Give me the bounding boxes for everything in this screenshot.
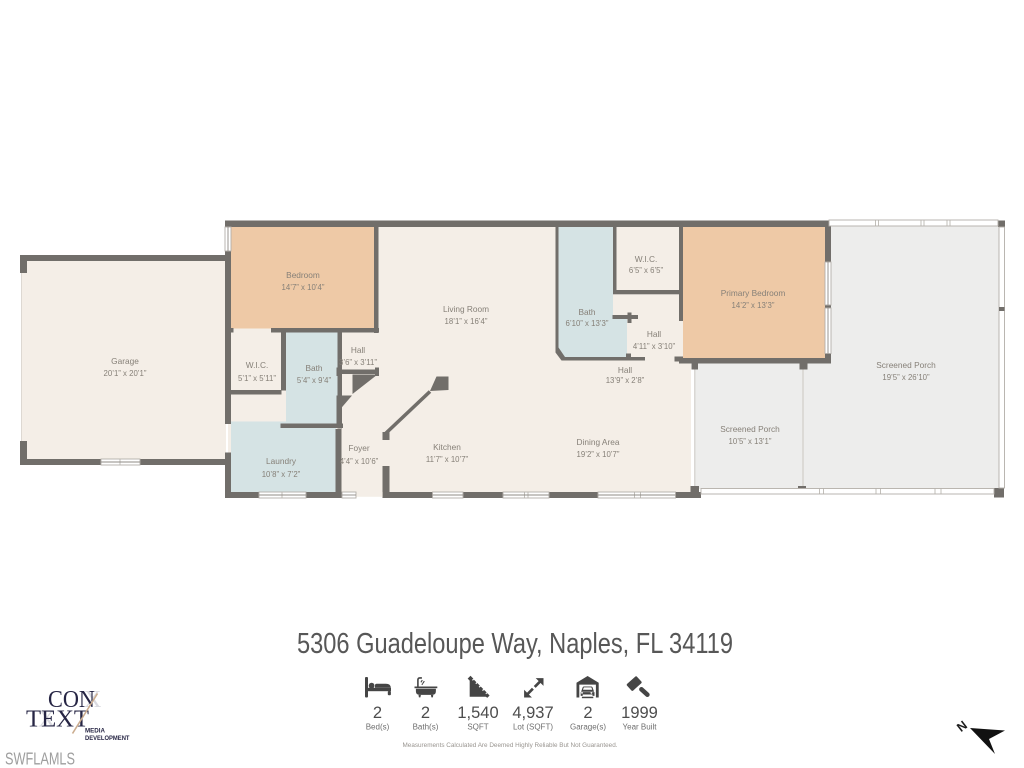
svg-text:Year Built: Year Built — [623, 723, 658, 732]
svg-text:Bedroom: Bedroom — [286, 270, 320, 280]
svg-text:13’9” x 2’8”: 13’9” x 2’8” — [606, 376, 645, 385]
svg-text:6’5” x 6’5”: 6’5” x 6’5” — [629, 266, 664, 275]
svg-text:3’6” x 3’11”: 3’6” x 3’11” — [339, 358, 377, 367]
svg-text:Bath(s): Bath(s) — [413, 723, 439, 732]
svg-text:Screened Porch: Screened Porch — [876, 360, 936, 370]
svg-text:Screened Porch: Screened Porch — [720, 424, 780, 434]
svg-text:5306 Guadeloupe Way, Naples, F: 5306 Guadeloupe Way, Naples, FL 34119 — [297, 628, 733, 660]
svg-text:Bed(s): Bed(s) — [366, 723, 390, 732]
svg-text:14’2” x 13’3”: 14’2” x 13’3” — [732, 301, 775, 310]
svg-text:5’4” x 9’4”: 5’4” x 9’4” — [297, 376, 332, 385]
svg-text:18’1” x 16’4”: 18’1” x 16’4” — [445, 317, 488, 326]
svg-text:MEDIA: MEDIA — [85, 728, 105, 735]
svg-text:Bath: Bath — [578, 307, 595, 317]
svg-text:2: 2 — [421, 704, 430, 722]
svg-text:Foyer: Foyer — [348, 443, 369, 453]
svg-text:19’5” x 26’10”: 19’5” x 26’10” — [882, 373, 930, 382]
svg-text:14’7” x 10’4”: 14’7” x 10’4” — [282, 283, 325, 292]
svg-text:4,937: 4,937 — [512, 704, 553, 722]
svg-text:10’5” x 13’1”: 10’5” x 13’1” — [729, 437, 772, 446]
svg-text:20’1” x 20’1”: 20’1” x 20’1” — [104, 369, 147, 378]
svg-text:Kitchen: Kitchen — [433, 442, 461, 452]
svg-text:1,540: 1,540 — [457, 704, 498, 722]
svg-text:Dining Area: Dining Area — [577, 437, 620, 447]
svg-text:SQFT: SQFT — [467, 723, 488, 732]
svg-text:1999: 1999 — [621, 704, 658, 722]
svg-text:5’1” x 5’11”: 5’1” x 5’11” — [238, 374, 276, 383]
svg-text:Garage(s): Garage(s) — [570, 723, 606, 732]
svg-text:DEVELOPMENT: DEVELOPMENT — [85, 735, 130, 742]
svg-text:4’11” x 3’10”: 4’11” x 3’10” — [633, 342, 676, 351]
svg-text:Primary Bedroom: Primary Bedroom — [721, 288, 786, 298]
svg-text:2: 2 — [373, 704, 382, 722]
svg-text:W.I.C.: W.I.C. — [635, 254, 658, 264]
svg-text:10’8” x 7’2”: 10’8” x 7’2” — [262, 470, 301, 479]
svg-text:2: 2 — [583, 704, 592, 722]
svg-text:Bath: Bath — [305, 363, 322, 373]
svg-text:Hall: Hall — [647, 329, 661, 339]
svg-text:Laundry: Laundry — [266, 456, 297, 466]
svg-text:SWFLAMLS: SWFLAMLS — [5, 749, 75, 768]
svg-text:19’2” x 10’7”: 19’2” x 10’7” — [577, 450, 620, 459]
svg-text:Hall: Hall — [618, 365, 632, 375]
svg-text:4’4” x 10’6”: 4’4” x 10’6” — [340, 457, 379, 466]
svg-text:Living Room: Living Room — [443, 304, 489, 314]
svg-text:TEXT: TEXT — [26, 707, 89, 733]
svg-text:Measurements Calculated Are De: Measurements Calculated Are Deemed Highl… — [403, 742, 618, 749]
svg-text:Lot (SQFT): Lot (SQFT) — [513, 723, 553, 732]
svg-text:Garage: Garage — [111, 356, 139, 366]
svg-text:Hall: Hall — [351, 345, 365, 355]
svg-text:6’10” x 13’3”: 6’10” x 13’3” — [566, 319, 609, 328]
svg-text:11’7” x 10’7”: 11’7” x 10’7” — [426, 455, 469, 464]
svg-text:W.I.C.: W.I.C. — [246, 360, 269, 370]
